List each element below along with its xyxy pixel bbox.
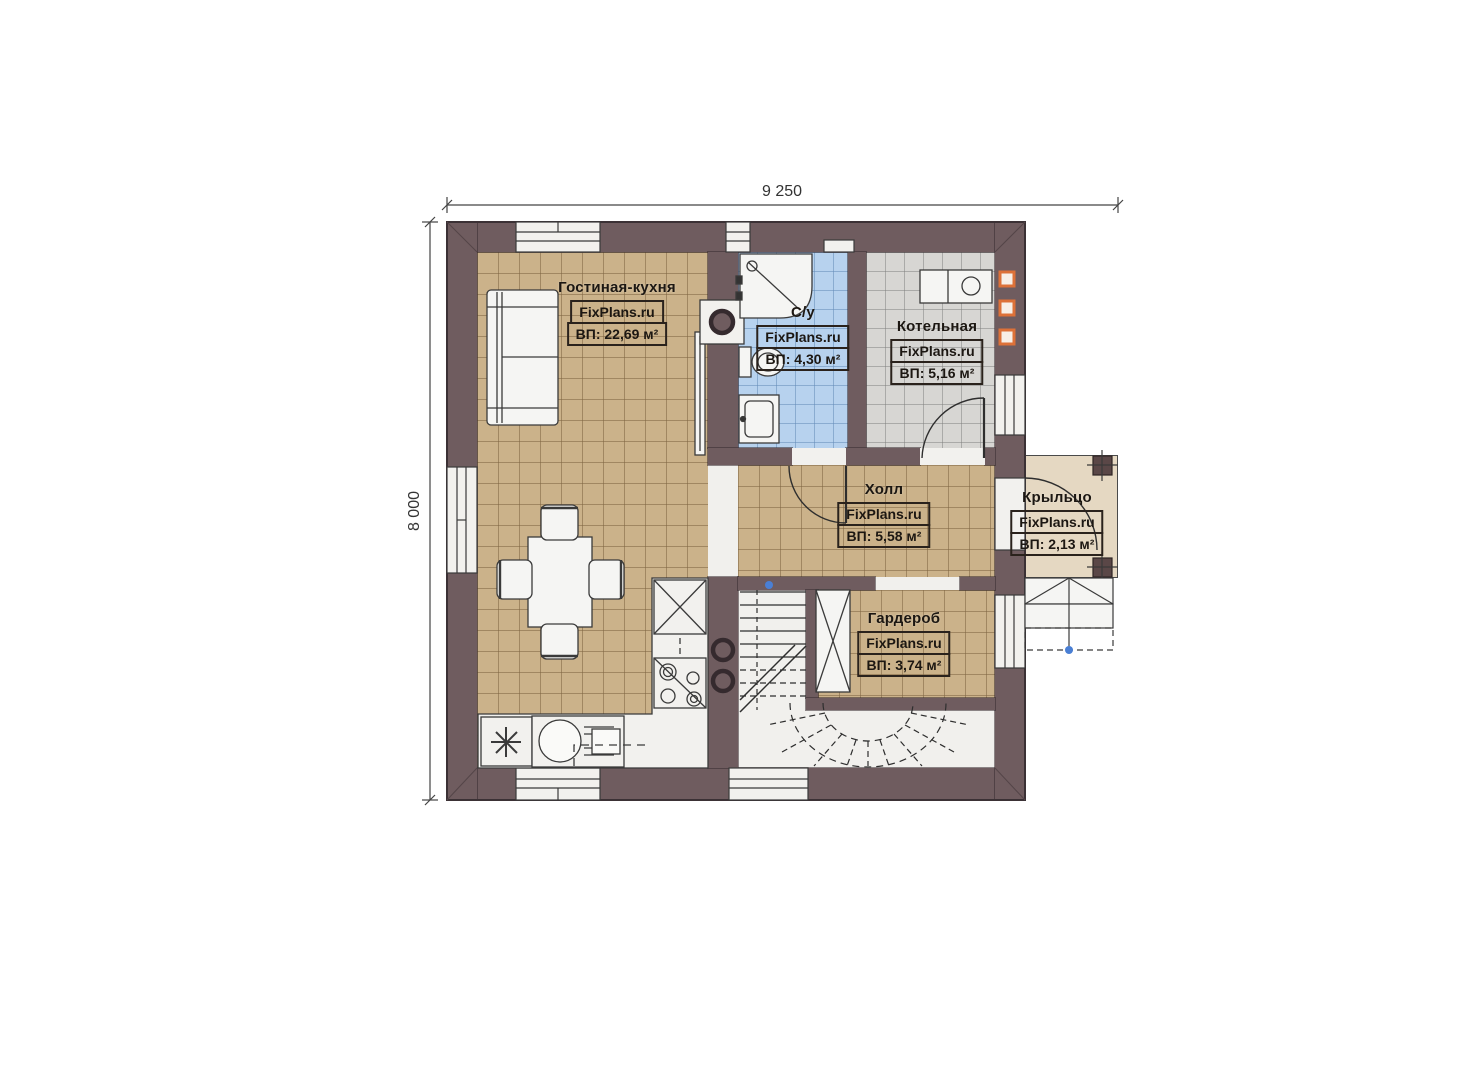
window-bottom-kitchen <box>516 768 600 800</box>
porch-name: Крыльцо <box>1022 489 1092 506</box>
living-room-brand: FixPlans.ru <box>570 300 663 324</box>
hall-label: Холл FixPlans.ru ВП: 5,58 м² <box>837 481 930 548</box>
boiler-room-area: ВП: 5,16 м² <box>891 361 984 385</box>
stove <box>654 658 706 708</box>
wardrobe-label: Гардероб FixPlans.ru ВП: 3,74 м² <box>857 610 950 677</box>
living-room-name: Гостиная-кухня <box>558 279 676 296</box>
steps-marker <box>1065 646 1073 654</box>
bathroom-brand: FixPlans.ru <box>756 325 849 349</box>
tv-unit <box>695 332 705 455</box>
fridge <box>654 580 706 634</box>
porch-brand: FixPlans.ru <box>1010 510 1103 534</box>
window-right-boiler <box>995 375 1025 435</box>
hall-name: Холл <box>865 481 903 498</box>
plan-linework: 9 250 8 000 <box>0 0 1473 1080</box>
window-right-wardrobe <box>995 595 1025 668</box>
stairs-upper-treads <box>740 590 806 710</box>
appliance-asterisk <box>481 717 532 766</box>
hall-area: ВП: 5,58 м² <box>838 524 931 548</box>
porch-label: Крыльцо FixPlans.ru ВП: 2,13 м² <box>1010 489 1103 556</box>
sofa <box>487 290 558 425</box>
flue-top <box>711 311 733 333</box>
kitchen-sink <box>532 716 624 767</box>
dimension-left-label: 8 000 <box>406 491 423 531</box>
dimension-top-label: 9 250 <box>762 183 802 200</box>
stairs-winder-treads <box>767 713 969 766</box>
hall-brand: FixPlans.ru <box>837 502 930 526</box>
washbasin <box>739 395 779 443</box>
boiler-room-label: Котельная FixPlans.ru ВП: 5,16 м² <box>890 318 983 385</box>
window-top-bathroom <box>726 222 750 252</box>
living-room-area: ВП: 22,69 м² <box>567 322 668 346</box>
wardrobe-name: Гардероб <box>868 610 941 627</box>
flue-kitchen-2 <box>713 671 733 691</box>
bathroom-door-opening <box>792 448 846 465</box>
boiler-room-name: Котельная <box>897 318 977 335</box>
boiler-door-opening <box>920 448 985 465</box>
window-left-living <box>447 467 477 573</box>
porch-post-top <box>1087 450 1118 481</box>
living-room-label: Гостиная-кухня FixPlans.ru ВП: 22,69 м² <box>558 279 676 346</box>
porch-area: ВП: 2,13 м² <box>1011 532 1104 556</box>
dining-table <box>528 537 592 627</box>
stairs-start-marker <box>765 581 773 589</box>
boiler-room-brand: FixPlans.ru <box>890 339 983 363</box>
porch-steps <box>1025 578 1113 654</box>
flue-kitchen-1 <box>713 640 733 660</box>
floor-plan-canvas: 9 250 8 000 Гостиная-кухня FixPlans.ru В… <box>0 0 1473 1080</box>
boiler-unit <box>920 270 992 303</box>
wardrobe-closet <box>816 590 850 692</box>
stairs-cut-line <box>740 645 806 712</box>
bathroom-label: С/у FixPlans.ru ВП: 4,30 м² <box>756 304 849 371</box>
window-top-living <box>516 222 600 252</box>
bathroom-area: ВП: 4,30 м² <box>757 347 850 371</box>
wardrobe-area: ВП: 3,74 м² <box>858 653 951 677</box>
wall-vents <box>1000 272 1014 344</box>
dimension-left <box>422 217 438 805</box>
bathroom-top-niche <box>824 240 854 252</box>
wardrobe-brand: FixPlans.ru <box>857 631 950 655</box>
window-bottom-stairs <box>729 768 808 800</box>
bathroom-name: С/у <box>791 304 815 321</box>
